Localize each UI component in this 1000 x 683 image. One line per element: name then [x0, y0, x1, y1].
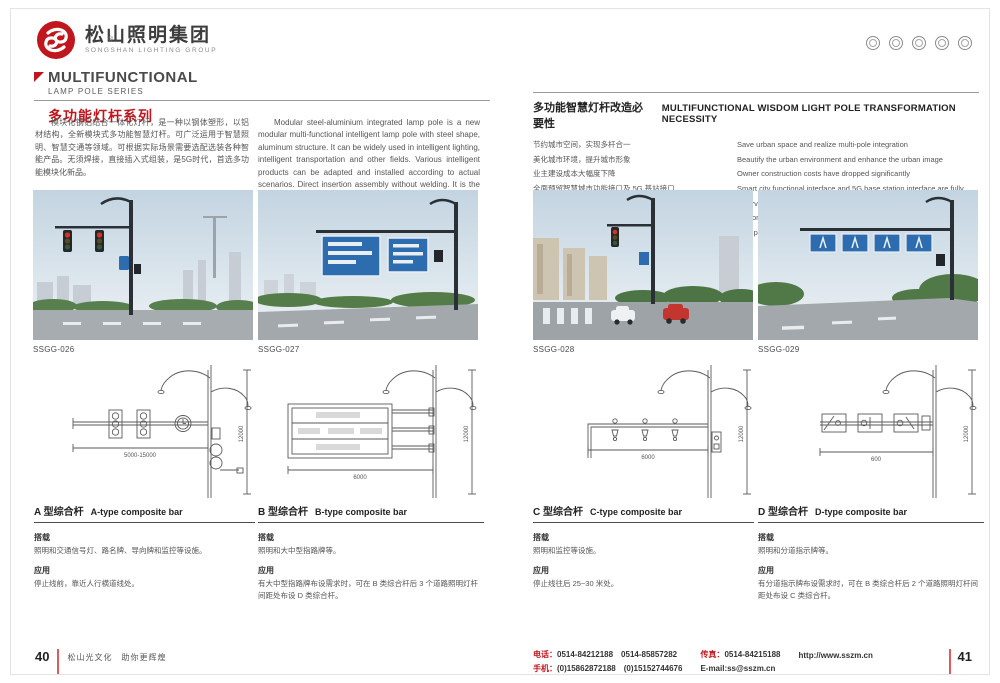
type-title-en: A-type composite bar — [91, 507, 183, 517]
title-rule — [34, 100, 490, 101]
cert-badge-icon — [912, 36, 926, 50]
intro-paragraph-cn: 模块化钢铝结合一体化灯杆，是一种以钢体塑形，以铝材结构，全新模块式多功能智慧灯杆… — [35, 117, 249, 179]
photo-ssgg-028-scene — [533, 190, 753, 340]
necessity-item: 业主建设成本大幅度下降 Owner construction costs hav… — [533, 167, 979, 182]
fax-label: 传真： — [700, 650, 724, 659]
necessity-en: Save urban space and realize multi-pole … — [737, 138, 979, 153]
photo-code: SSGG-029 — [758, 345, 978, 354]
phone-block: 电话：0514-84212188 0514-85857282 手机：(0)158… — [533, 648, 682, 675]
necessity-cn: 美化城市环境，提升城市形象 — [533, 153, 737, 168]
application-label: 应用 — [758, 565, 984, 576]
mobile-numbers: (0)15862872188 (0)15152744676 — [557, 664, 682, 673]
type-title-cn: A 型综合杆 — [34, 503, 84, 518]
type-title-en: B-type composite bar — [315, 507, 407, 517]
necessity-item: 节约城市空间，实现多杆合一 Save urban space and reali… — [533, 138, 979, 153]
footer-divider — [949, 649, 951, 674]
cert-badge-icon — [889, 36, 903, 50]
page-number: 41 — [958, 649, 972, 664]
dimension-label-vertical: 12000 — [739, 425, 745, 442]
dimension-label-vertical: 12000 — [239, 425, 245, 442]
dimension-label-horizontal: 6000 — [353, 475, 367, 481]
photo-code: SSGG-026 — [33, 345, 253, 354]
photo-ssgg-026-scene — [33, 190, 253, 340]
dimension-label-horizontal: 6000 — [641, 455, 655, 461]
application-text: 有大中型指路牌布设需求时，可在 B 类综合杆后 3 个道路照明灯杆间距处布设 D… — [258, 578, 484, 601]
series-subtitle-en: LAMP POLE SERIES — [48, 87, 490, 96]
application-text: 停止线前，靠近人行横道线处。 — [34, 578, 255, 589]
mobile-label: 手机： — [533, 664, 557, 673]
load-label: 搭载 — [34, 532, 255, 543]
b-type-drawing: 6000 12000 — [258, 362, 478, 500]
product-photo: SSGG-026 — [33, 190, 253, 354]
necessity-cn: 节约城市空间，实现多杆合一 — [533, 138, 737, 153]
load-text: 照明和监控等设施。 — [533, 545, 754, 556]
website-block: http://www.sszm.cn — [799, 648, 873, 675]
application-label: 应用 — [533, 565, 754, 576]
c-type-spec: C 型综合杆 C-type composite bar 搭载 照明和监控等设施。… — [533, 503, 754, 590]
catalog-spread: 松山照明集团 SONGSHAN LIGHTING GROUP ® MULTIFU… — [0, 0, 1000, 683]
dimension-label-vertical: 12000 — [964, 425, 970, 442]
a-type-spec: A 型综合杆 A-type composite bar 搭载 照明和交通信号灯、… — [34, 503, 255, 590]
red-triangle-icon — [34, 72, 44, 82]
photo-code: SSGG-027 — [258, 345, 478, 354]
brand-name-en: SONGSHAN LIGHTING GROUP — [85, 47, 217, 54]
tel-numbers: 0514-84212188 0514-85857282 — [557, 650, 677, 659]
intro-text-cn: 模块化钢铝结合一体化灯杆，是一种以钢体塑形，以铝材结构，全新模块式多功能智慧灯杆… — [35, 117, 249, 179]
c-type-drawing: 6000 12000 — [533, 362, 753, 500]
necessity-title-cn: 多功能智慧灯杆改造必要性 — [533, 99, 652, 131]
load-label: 搭载 — [258, 532, 484, 543]
necessity-en: Beautify the urban environment and enhan… — [737, 153, 979, 168]
necessity-item: 美化城市环境，提升城市形象 Beautify the urban environ… — [533, 153, 979, 168]
brand-names: 松山照明集团 SONGSHAN LIGHTING GROUP — [85, 26, 217, 54]
type-title-cn: D 型综合杆 — [758, 503, 808, 518]
type-title-en: C-type composite bar — [590, 507, 682, 517]
page-number: 40 — [35, 649, 49, 664]
application-label: 应用 — [258, 565, 484, 576]
type-title-cn: C 型综合杆 — [533, 503, 583, 518]
d-type-drawing: 600 12000 — [758, 362, 978, 500]
contact-footer: 电话：0514-84212188 0514-85857282 手机：(0)158… — [533, 648, 873, 675]
website-url: http://www.sszm.cn — [799, 651, 873, 660]
tel-label: 电话： — [533, 650, 557, 659]
a-type-drawing: 5000-15000 12000 — [33, 362, 253, 500]
type-title-en: D-type composite bar — [815, 507, 907, 517]
necessity-title-en: MULTIFUNCTIONAL WISDOM LIGHT POLE TRANSF… — [662, 103, 979, 125]
product-photo: SSGG-027 — [258, 190, 478, 354]
load-text: 照明和交通信号灯、路名牌、导向牌和监控等设施。 — [34, 545, 255, 556]
photo-ssgg-027-scene — [258, 190, 478, 340]
load-text: 照明和大中型指路牌等。 — [258, 545, 484, 556]
brand-swirl-icon — [36, 20, 76, 60]
load-label: 搭载 — [533, 532, 754, 543]
application-text: 停止线往后 25~30 米处。 — [533, 578, 754, 589]
product-photo: SSGG-028 — [533, 190, 753, 354]
application-label: 应用 — [34, 565, 255, 576]
load-text: 照明和分道指示牌等。 — [758, 545, 984, 556]
brand-name-cn: 松山照明集团 — [85, 26, 217, 47]
dimension-label-vertical: 12000 — [464, 425, 470, 442]
d-type-spec: D 型综合杆 D-type composite bar 搭载 照明和分道指示牌等… — [758, 503, 984, 601]
photo-ssgg-029-scene — [758, 190, 978, 340]
cert-badge-icon — [866, 36, 880, 50]
photo-code: SSGG-028 — [533, 345, 753, 354]
series-title-en: MULTIFUNCTIONAL — [48, 70, 198, 85]
cert-badge-icon — [935, 36, 949, 50]
fax-number: 0514-84215188 — [724, 650, 780, 659]
right-page-footer: 41 — [949, 649, 972, 674]
fax-email-block: 传真：0514-84215188 E-mail:ss@sszm.cn — [700, 648, 780, 675]
footer-divider — [57, 649, 59, 674]
cert-badge-icon — [958, 36, 972, 50]
b-type-spec: B 型综合杆 B-type composite bar 搭载 照明和大中型指路牌… — [258, 503, 484, 601]
type-title-cn: B 型综合杆 — [258, 503, 308, 518]
product-photo: SSGG-029 — [758, 190, 978, 354]
load-label: 搭载 — [758, 532, 984, 543]
brand-logo: 松山照明集团 SONGSHAN LIGHTING GROUP ® — [36, 20, 217, 60]
application-text: 有分道指示牌布设需求时，可在 B 类综合杆后 2 个道路照明灯杆间距处布设 C … — [758, 578, 984, 601]
necessity-cn: 业主建设成本大幅度下降 — [533, 167, 737, 182]
left-page-footer: 40 松山光文化 助你更辉煌 — [35, 649, 166, 674]
registered-trademark-mark: ® — [108, 36, 113, 43]
dimension-label-horizontal: 600 — [871, 457, 882, 463]
dimension-label-horizontal: 5000-15000 — [124, 453, 157, 459]
brand-tagline: 松山光文化 助你更辉煌 — [67, 649, 166, 663]
necessity-en: Owner construction costs have dropped si… — [737, 167, 979, 182]
email-text: E-mail:ss@sszm.cn — [700, 664, 775, 673]
certification-badges — [866, 36, 972, 50]
